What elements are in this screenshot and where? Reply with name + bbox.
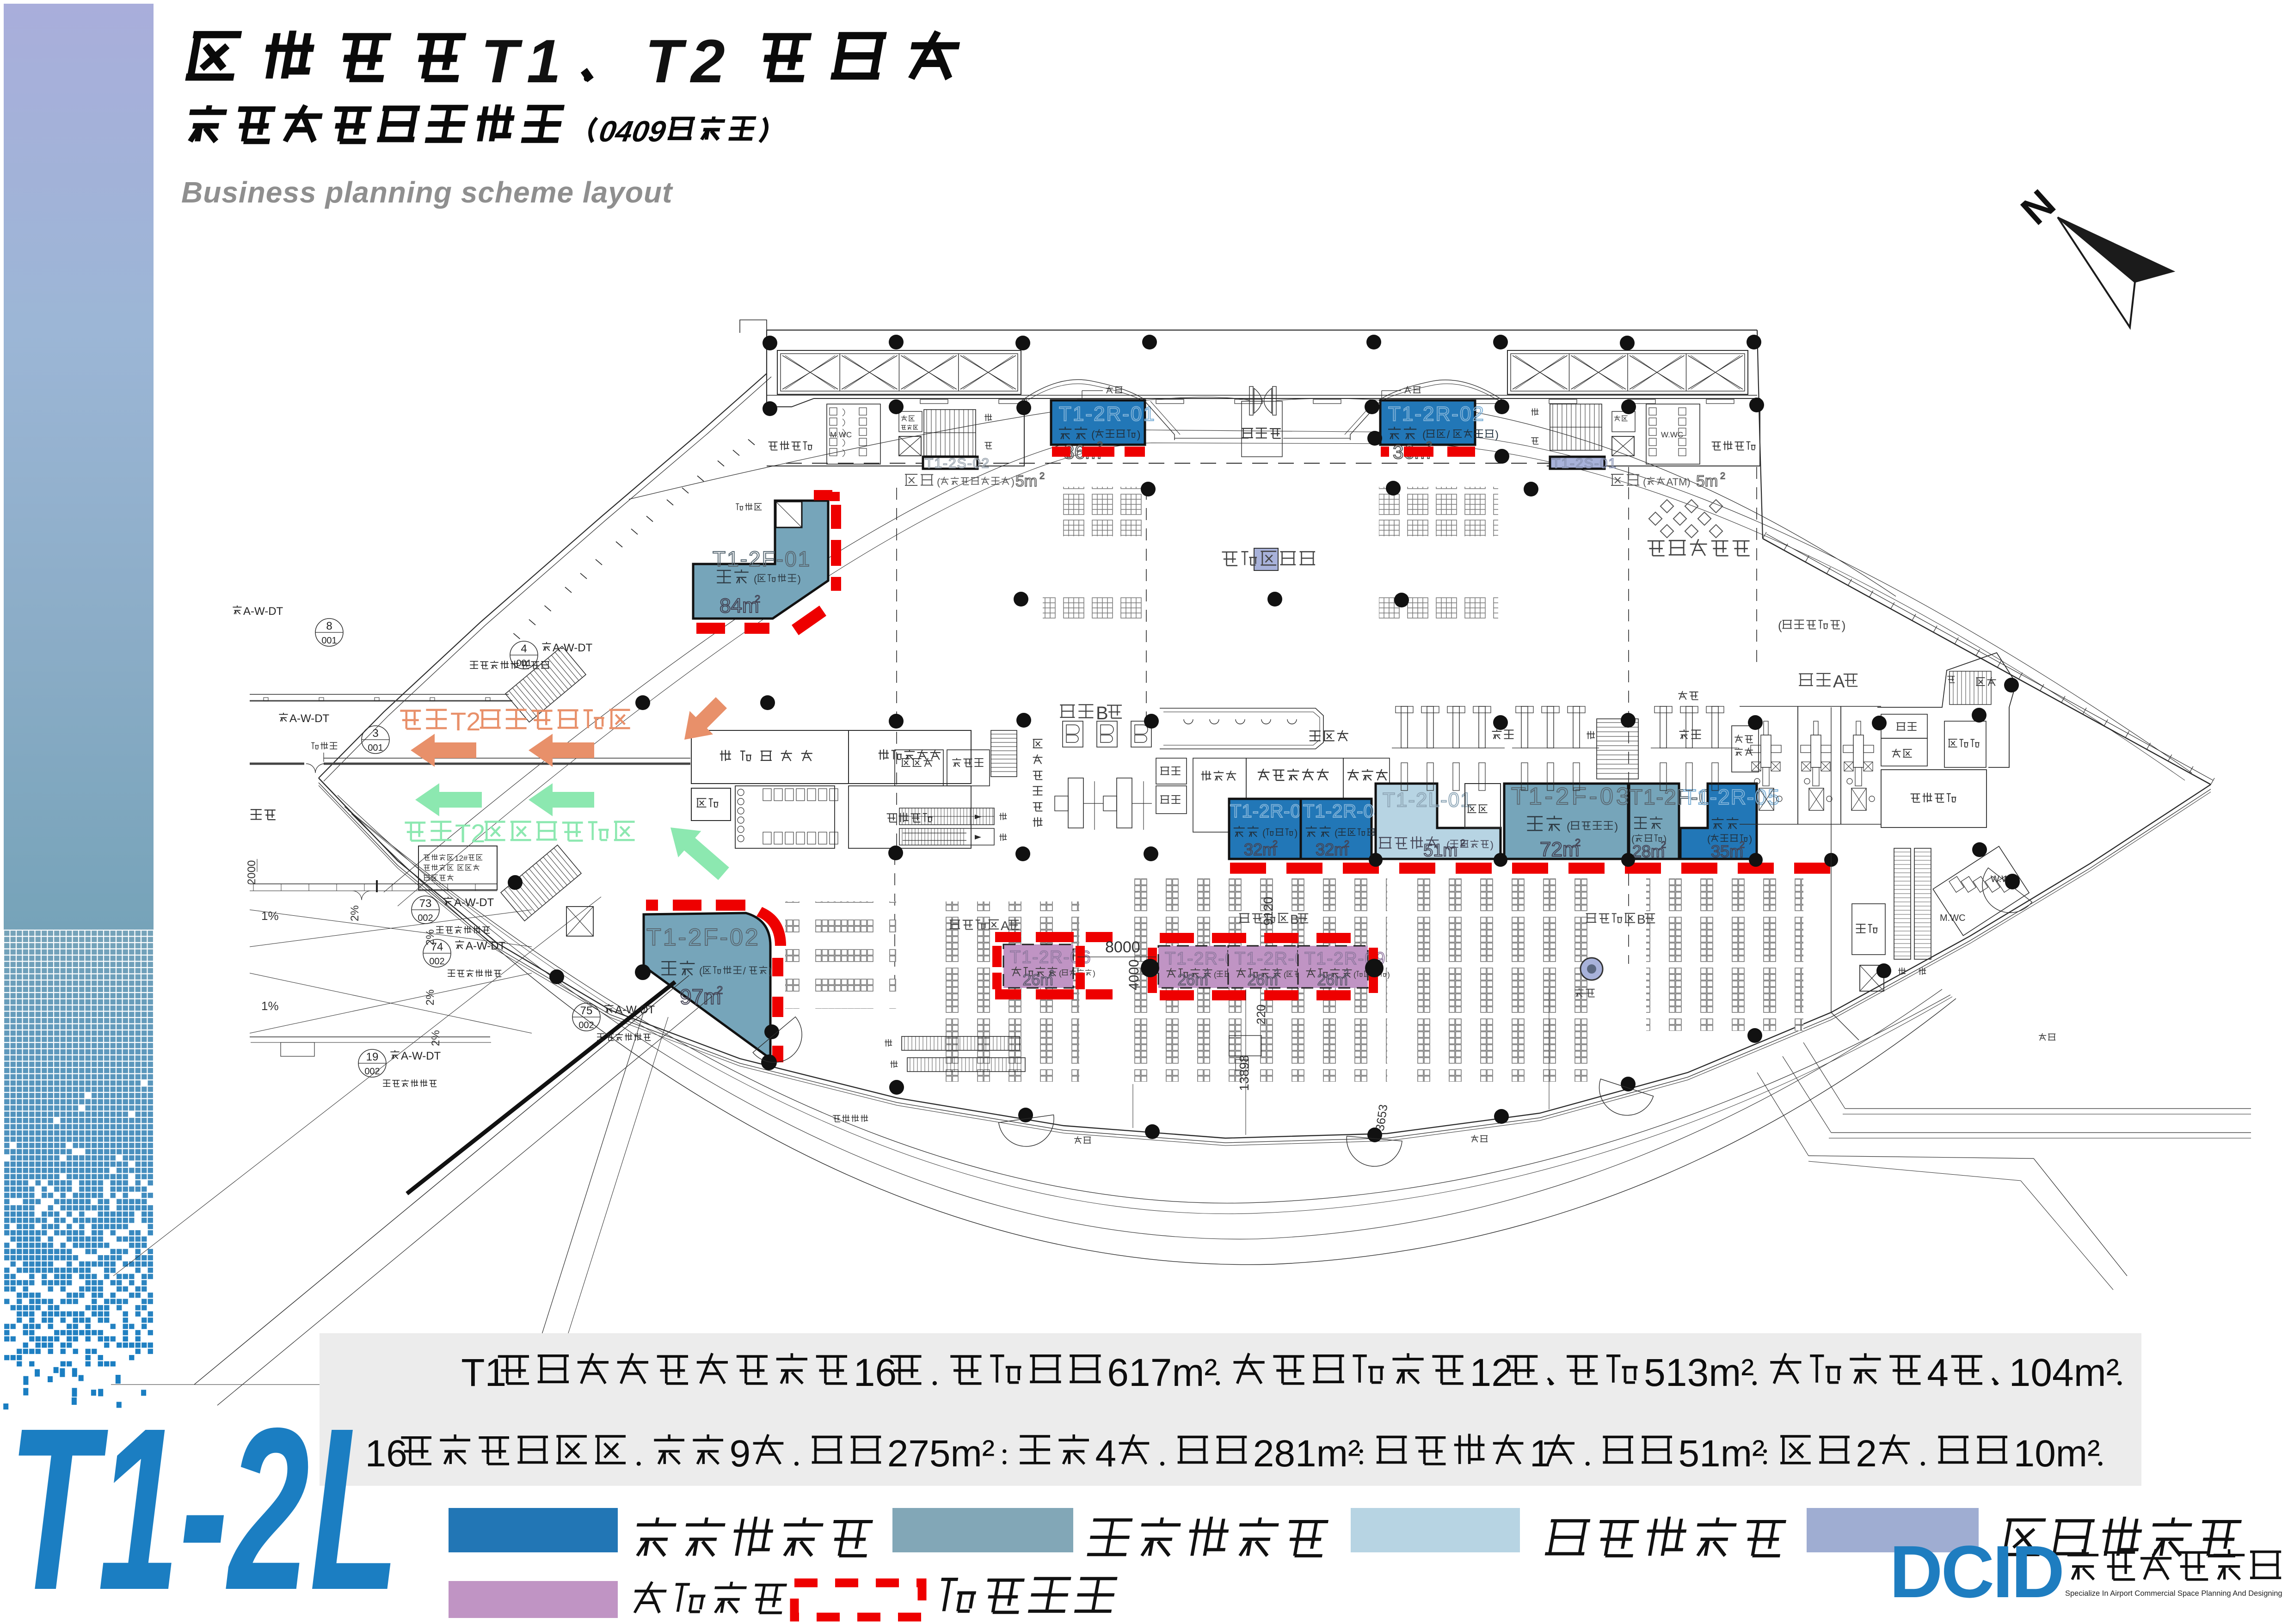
svg-text:(: ( — [1059, 969, 1062, 978]
svg-text:2%: 2% — [349, 905, 361, 921]
svg-text:281m²: 281m² — [1253, 1433, 1360, 1475]
svg-text:32m: 32m — [1316, 840, 1348, 859]
svg-text:2%: 2% — [424, 989, 437, 1005]
svg-text:1: 1 — [1530, 1433, 1551, 1475]
svg-text:): ) — [1294, 828, 1298, 839]
svg-text:(: ( — [1214, 970, 1217, 979]
svg-text:(: ( — [699, 965, 703, 977]
svg-text:2: 2 — [1575, 837, 1581, 848]
svg-text:5m: 5m — [1015, 472, 1037, 490]
svg-text:B: B — [1637, 912, 1646, 926]
svg-text:(: ( — [1091, 429, 1095, 441]
svg-text:84m: 84m — [720, 594, 759, 617]
svg-text:2: 2 — [1344, 839, 1349, 849]
svg-text:2000: 2000 — [246, 860, 258, 885]
svg-text:104m²: 104m² — [2009, 1351, 2119, 1394]
svg-text:(: ( — [1284, 970, 1286, 979]
svg-text:26m: 26m — [1023, 971, 1053, 989]
svg-text:16: 16 — [854, 1351, 897, 1394]
svg-text:2: 2 — [1661, 840, 1666, 850]
svg-text:T2: T2 — [645, 27, 733, 96]
svg-text:12: 12 — [1470, 1351, 1513, 1394]
svg-text:Business planning scheme layou: Business planning scheme layout — [181, 176, 673, 209]
svg-text:275m²: 275m² — [887, 1433, 995, 1475]
svg-text:13898: 13898 — [1237, 1055, 1251, 1091]
svg-text:): ) — [769, 965, 772, 977]
svg-text:(: ( — [937, 476, 941, 488]
svg-text:513m²: 513m² — [1644, 1351, 1754, 1394]
svg-text:T1-2L-01: T1-2L-01 — [1383, 789, 1473, 811]
svg-text:8000: 8000 — [1105, 938, 1140, 956]
svg-text:): ) — [1749, 834, 1752, 845]
svg-text:2: 2 — [1856, 1433, 1877, 1475]
svg-text:): ) — [1011, 476, 1015, 488]
svg-text:T1-2F-02: T1-2F-02 — [646, 924, 760, 951]
svg-text:A-W-DT: A-W-DT — [401, 1050, 441, 1062]
svg-text:51m²: 51m² — [1679, 1433, 1765, 1475]
svg-text:2: 2 — [1039, 471, 1045, 481]
svg-text:T1-2R-02: T1-2R-02 — [1388, 403, 1485, 425]
svg-text:72m: 72m — [1540, 838, 1580, 861]
svg-text:28m: 28m — [1632, 842, 1665, 861]
svg-text:T1-2R-05: T1-2R-05 — [1683, 785, 1780, 809]
svg-text:A-W-DT: A-W-DT — [289, 712, 330, 725]
svg-text:2: 2 — [1720, 471, 1725, 481]
svg-text:1%: 1% — [261, 999, 279, 1013]
svg-text:617m²: 617m² — [1107, 1351, 1217, 1394]
svg-text:B: B — [1290, 912, 1299, 926]
svg-text:26m: 26m — [1248, 971, 1278, 989]
svg-text:T1-2L: T1-2L — [8, 1379, 399, 1622]
svg-text:2%: 2% — [430, 1030, 442, 1046]
svg-text:002: 002 — [418, 913, 433, 923]
svg-text:): ) — [798, 573, 801, 585]
svg-text:12#: 12# — [455, 854, 468, 863]
svg-text:2: 2 — [1460, 838, 1465, 848]
svg-text:(: ( — [1262, 828, 1266, 839]
svg-text:2: 2 — [1274, 968, 1279, 978]
svg-text:(: ( — [1778, 619, 1782, 632]
svg-text:T2: T2 — [455, 819, 485, 848]
svg-text:97m: 97m — [680, 985, 721, 1009]
svg-text:51m: 51m — [1423, 841, 1458, 860]
svg-text:75: 75 — [580, 1005, 593, 1017]
svg-text:): ) — [1614, 821, 1618, 833]
svg-text:4: 4 — [521, 643, 527, 655]
svg-text:M.WC: M.WC — [1940, 913, 1966, 923]
svg-text:(: ( — [1353, 970, 1356, 979]
svg-text:5m: 5m — [1696, 472, 1718, 490]
svg-text:(: ( — [1643, 476, 1647, 488]
svg-text:4: 4 — [1927, 1351, 1949, 1394]
svg-text:T1-2R-01: T1-2R-01 — [1059, 403, 1156, 425]
svg-text:9120: 9120 — [1261, 897, 1275, 925]
svg-text:(: ( — [1567, 821, 1570, 833]
svg-text:W.WC: W.WC — [1661, 430, 1683, 439]
svg-text:M.WC: M.WC — [830, 430, 852, 439]
svg-text:T1: T1 — [481, 27, 569, 96]
svg-text:T1-2R-04: T1-2R-04 — [1303, 801, 1385, 821]
svg-text:): ) — [1137, 429, 1141, 441]
svg-text:35m: 35m — [1711, 842, 1743, 861]
svg-text:2: 2 — [1050, 968, 1054, 978]
svg-text:(: ( — [1422, 429, 1426, 441]
svg-text:002: 002 — [578, 1020, 594, 1030]
svg-text:(: ( — [1707, 834, 1710, 845]
svg-text:): ) — [1495, 429, 1499, 441]
svg-text:A-W-DT: A-W-DT — [466, 940, 506, 952]
svg-text:A-W-DT: A-W-DT — [243, 605, 283, 618]
svg-text:001: 001 — [321, 636, 337, 646]
svg-text:001: 001 — [368, 743, 383, 753]
svg-text:2: 2 — [717, 984, 723, 997]
svg-text:2: 2 — [1740, 840, 1745, 850]
svg-text:8: 8 — [326, 620, 332, 632]
svg-text:): ) — [1093, 969, 1095, 978]
svg-text:26m: 26m — [1178, 971, 1208, 989]
svg-text:Specialize In Airport Commerci: Specialize In Airport Commercial Space P… — [2065, 1589, 2282, 1598]
svg-text:002: 002 — [429, 956, 444, 967]
svg-text:T1-2R-03: T1-2R-03 — [1230, 801, 1312, 821]
svg-text:T1-2S-02: T1-2S-02 — [925, 456, 990, 471]
svg-text:19: 19 — [366, 1051, 379, 1063]
svg-text:73: 73 — [419, 897, 432, 910]
svg-text:T1-2S-01: T1-2S-01 — [1552, 456, 1617, 471]
svg-text:2%: 2% — [424, 929, 437, 945]
svg-text:): ) — [1842, 619, 1846, 632]
svg-text:3: 3 — [372, 727, 378, 740]
svg-text:B: B — [1096, 703, 1108, 723]
svg-text:T1-2F-03: T1-2F-03 — [1511, 783, 1632, 810]
svg-text:A-W-DT: A-W-DT — [615, 1004, 655, 1016]
svg-text:2: 2 — [755, 593, 760, 605]
svg-text:2: 2 — [1344, 968, 1349, 978]
svg-text:T2: T2 — [450, 707, 480, 736]
svg-text:1%: 1% — [261, 909, 279, 923]
svg-text:): ) — [1490, 839, 1494, 851]
svg-text:/: / — [1447, 429, 1450, 441]
svg-text:(: ( — [754, 573, 757, 585]
svg-text:T1-2F-01: T1-2F-01 — [713, 547, 811, 571]
svg-text:32m: 32m — [1244, 840, 1276, 859]
svg-text:A-W-DT: A-W-DT — [553, 642, 593, 654]
svg-text:2: 2 — [1273, 839, 1278, 849]
svg-text:(: ( — [1335, 828, 1338, 839]
svg-text:A: A — [1001, 919, 1009, 933]
svg-text:26m: 26m — [1317, 971, 1348, 989]
svg-text:002: 002 — [364, 1066, 380, 1077]
svg-text:0409: 0409 — [597, 115, 668, 147]
svg-text:10m²: 10m² — [2014, 1433, 2100, 1475]
svg-text:4: 4 — [1095, 1433, 1117, 1475]
svg-text:9: 9 — [730, 1433, 751, 1475]
svg-text:/: / — [743, 965, 746, 977]
svg-text:A-W-DT: A-W-DT — [454, 896, 494, 909]
svg-text:): ) — [1387, 970, 1390, 979]
svg-text:DCID: DCID — [1889, 1530, 2063, 1613]
svg-text:ATM): ATM) — [1667, 476, 1691, 488]
svg-text:4000: 4000 — [1126, 959, 1142, 990]
svg-text:2: 2 — [1205, 968, 1209, 978]
svg-text:220: 220 — [1254, 1005, 1268, 1024]
svg-text:A: A — [1833, 672, 1845, 692]
